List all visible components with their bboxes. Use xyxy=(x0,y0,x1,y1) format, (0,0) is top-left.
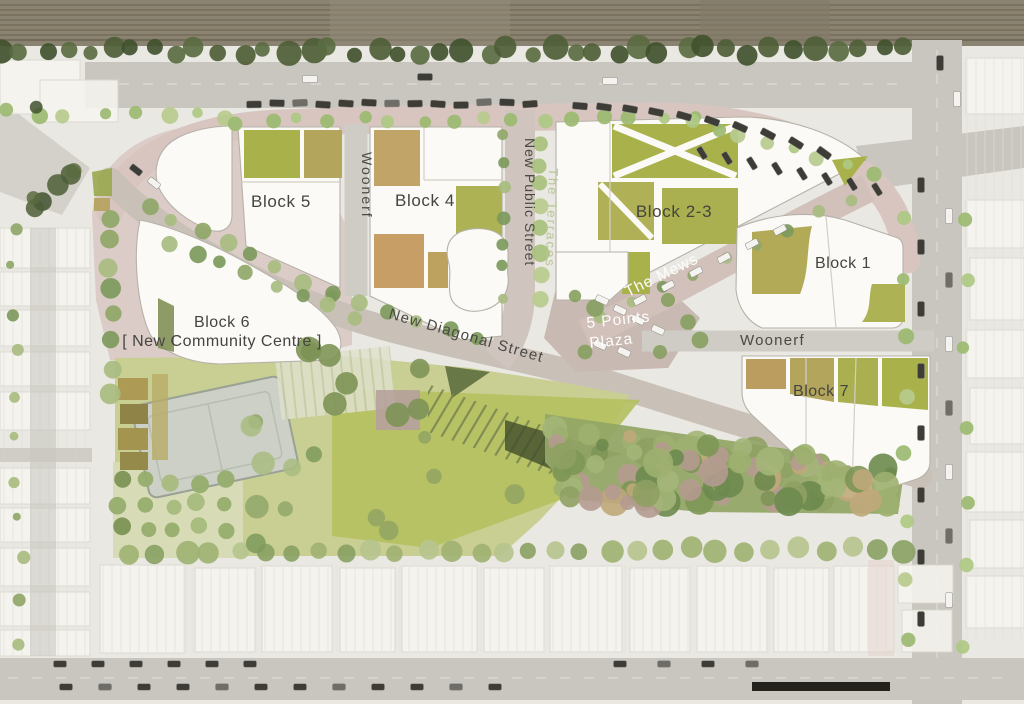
tree xyxy=(100,108,111,119)
car xyxy=(946,273,953,288)
tree xyxy=(176,541,200,565)
car xyxy=(54,661,67,668)
tree xyxy=(550,443,577,470)
tree xyxy=(142,198,159,215)
tree xyxy=(351,294,368,311)
tree xyxy=(323,392,347,416)
tree xyxy=(496,260,507,271)
car xyxy=(954,92,961,107)
car xyxy=(702,661,715,668)
bottom-road xyxy=(0,658,1024,700)
tree xyxy=(218,523,234,539)
car xyxy=(946,529,953,544)
tree xyxy=(161,236,177,252)
car xyxy=(244,661,257,668)
tree xyxy=(896,445,912,461)
tree xyxy=(271,281,283,293)
tree xyxy=(961,496,975,510)
tree xyxy=(596,439,609,452)
car xyxy=(746,661,759,668)
car xyxy=(92,661,105,668)
tree xyxy=(114,471,131,488)
tree xyxy=(568,44,585,61)
tree xyxy=(278,501,293,516)
tree xyxy=(497,212,511,226)
car xyxy=(918,612,925,627)
car xyxy=(168,661,181,668)
tree xyxy=(956,640,970,654)
label-woonerf-east: Woonerf xyxy=(740,332,805,349)
car xyxy=(177,684,190,691)
tree xyxy=(8,477,19,488)
car xyxy=(372,684,385,691)
car xyxy=(946,465,953,480)
car xyxy=(130,661,143,668)
tree xyxy=(431,43,449,61)
tree xyxy=(419,540,439,560)
tree xyxy=(543,34,569,60)
tree xyxy=(187,493,205,511)
tree xyxy=(213,255,226,268)
tree xyxy=(113,517,131,535)
car xyxy=(937,56,944,71)
car xyxy=(918,426,925,441)
tree xyxy=(681,536,703,558)
tree xyxy=(843,159,853,169)
tree xyxy=(84,46,98,60)
tree xyxy=(852,469,873,490)
tree xyxy=(794,444,815,465)
car xyxy=(292,99,307,107)
tree xyxy=(241,415,262,436)
tree xyxy=(141,522,156,537)
tree xyxy=(473,544,492,563)
long-vehicle xyxy=(752,682,890,691)
tree xyxy=(291,113,302,124)
tree xyxy=(320,114,334,128)
tree xyxy=(703,540,726,563)
tree xyxy=(646,42,668,64)
car xyxy=(476,98,491,106)
car xyxy=(60,684,73,691)
tree xyxy=(306,446,322,462)
site-plan-svg: Block 5 Block 4 Block 2-3 Block 1 Block … xyxy=(0,0,1024,704)
tree xyxy=(477,111,490,124)
car xyxy=(918,550,925,565)
tree xyxy=(13,513,21,521)
tree xyxy=(494,36,516,58)
tree xyxy=(246,534,266,554)
car xyxy=(946,401,953,416)
tree xyxy=(717,39,735,57)
tree xyxy=(498,294,508,304)
car xyxy=(361,99,376,107)
car xyxy=(138,684,151,691)
tree xyxy=(877,39,893,55)
tree xyxy=(843,537,863,557)
tree xyxy=(680,314,696,330)
tree xyxy=(100,384,121,405)
car xyxy=(294,684,307,691)
tree xyxy=(866,167,881,182)
tree xyxy=(228,117,243,132)
car xyxy=(407,100,422,107)
tree xyxy=(297,289,310,302)
tree xyxy=(30,101,43,114)
tree xyxy=(255,42,270,57)
tree xyxy=(277,41,302,66)
tree xyxy=(958,213,972,227)
tree xyxy=(532,291,549,308)
tree xyxy=(369,38,391,60)
tree xyxy=(40,43,57,60)
label-block-7: Block 7 xyxy=(793,383,849,400)
tree xyxy=(386,545,403,562)
tree xyxy=(758,37,779,58)
tree xyxy=(317,37,335,55)
tree xyxy=(569,290,581,302)
tree xyxy=(283,459,301,477)
tree xyxy=(245,495,269,519)
tree xyxy=(347,48,362,63)
tree xyxy=(449,38,473,62)
tree xyxy=(653,540,674,561)
tree xyxy=(10,44,27,61)
tree xyxy=(538,114,553,129)
tree xyxy=(209,45,226,62)
tree xyxy=(898,572,913,587)
car xyxy=(572,102,588,110)
tree xyxy=(692,332,709,349)
car xyxy=(384,100,399,107)
tree xyxy=(311,543,327,559)
car xyxy=(918,178,925,193)
tree xyxy=(496,239,508,251)
label-block-1: Block 1 xyxy=(815,255,871,272)
tree xyxy=(220,234,238,252)
car xyxy=(946,593,953,608)
tree xyxy=(623,430,636,443)
tree xyxy=(268,260,281,273)
tree xyxy=(410,359,430,379)
label-new-public-street: New Public Street xyxy=(522,138,538,266)
tree xyxy=(348,311,362,325)
tree xyxy=(236,45,256,65)
car xyxy=(303,76,318,83)
tree xyxy=(611,46,629,64)
tree xyxy=(821,481,836,496)
tree xyxy=(9,392,20,403)
community-gardens xyxy=(118,374,168,470)
car xyxy=(333,684,346,691)
car xyxy=(614,661,627,668)
tree xyxy=(578,486,603,511)
tree xyxy=(583,43,601,61)
tree xyxy=(498,157,509,168)
tree xyxy=(243,247,257,261)
car xyxy=(206,661,219,668)
label-block-4: Block 4 xyxy=(395,191,455,210)
tree xyxy=(266,114,281,129)
context-buildings-left xyxy=(0,228,92,656)
tree xyxy=(338,545,356,563)
tree xyxy=(6,261,14,269)
tree xyxy=(734,542,754,562)
tree xyxy=(385,403,409,427)
tree xyxy=(119,545,139,565)
tree xyxy=(504,113,517,126)
tree xyxy=(418,431,431,444)
tree xyxy=(892,540,916,564)
tree xyxy=(98,258,117,277)
tree xyxy=(13,594,26,607)
tree xyxy=(627,444,643,460)
tree xyxy=(605,484,621,500)
tree xyxy=(961,273,975,287)
car xyxy=(411,684,424,691)
tree xyxy=(787,536,809,558)
car xyxy=(99,684,112,691)
tree xyxy=(959,558,973,572)
tree xyxy=(390,47,405,62)
tree xyxy=(360,539,381,560)
car xyxy=(918,364,925,379)
tree xyxy=(447,115,461,129)
tree xyxy=(737,45,758,66)
tree xyxy=(168,46,186,64)
tree xyxy=(55,109,69,123)
car xyxy=(499,99,514,107)
car xyxy=(453,102,468,109)
label-block-6: Block 6 xyxy=(194,314,250,331)
car xyxy=(489,684,502,691)
tree xyxy=(105,305,121,321)
tree xyxy=(100,230,119,249)
car xyxy=(918,240,925,255)
tree xyxy=(61,42,77,58)
tree xyxy=(901,633,915,647)
tree xyxy=(379,521,399,541)
tree xyxy=(774,487,803,516)
tree xyxy=(564,112,579,127)
tree xyxy=(162,475,179,492)
tree xyxy=(191,517,208,534)
tree xyxy=(897,273,909,285)
car xyxy=(216,684,229,691)
tree xyxy=(846,195,858,207)
label-woonerf-west: Woonerf xyxy=(359,152,375,219)
tree xyxy=(784,40,803,59)
car xyxy=(450,684,463,691)
tree xyxy=(102,210,120,228)
tree xyxy=(643,448,673,478)
car xyxy=(315,101,330,109)
tree xyxy=(653,345,667,359)
tree xyxy=(441,541,462,562)
tree xyxy=(66,163,82,179)
car xyxy=(246,101,261,108)
label-block-2-3: Block 2-3 xyxy=(636,202,712,221)
tree xyxy=(100,278,121,299)
context-buildings-right xyxy=(966,58,1024,638)
context-buildings-bottom xyxy=(100,560,953,656)
tree xyxy=(17,551,30,564)
car xyxy=(658,661,671,668)
tree xyxy=(102,331,119,348)
car xyxy=(338,100,353,108)
tree xyxy=(760,540,780,560)
tree xyxy=(859,489,882,512)
tree xyxy=(526,47,541,62)
tree xyxy=(408,399,429,420)
tree xyxy=(411,46,430,65)
tree xyxy=(505,484,525,504)
car xyxy=(946,209,953,224)
tree xyxy=(601,540,623,562)
car xyxy=(918,302,925,317)
tree xyxy=(499,181,511,193)
tree xyxy=(122,39,138,55)
tree xyxy=(898,328,914,344)
tree xyxy=(817,542,837,562)
masterplan-stage: Block 5 Block 4 Block 2-3 Block 1 Block … xyxy=(0,0,1024,704)
car xyxy=(918,488,925,503)
tree xyxy=(27,191,41,205)
tree xyxy=(627,541,647,561)
car xyxy=(946,337,953,352)
tree xyxy=(697,434,719,456)
tree xyxy=(138,497,154,513)
tree xyxy=(756,447,785,476)
tree xyxy=(420,116,432,128)
tree xyxy=(47,174,69,196)
tree xyxy=(867,539,888,560)
tree xyxy=(728,451,751,474)
tree xyxy=(192,107,203,118)
tree xyxy=(238,265,253,280)
tree xyxy=(104,361,122,379)
tree xyxy=(360,111,372,123)
tree xyxy=(426,469,441,484)
tree xyxy=(381,115,394,128)
tree xyxy=(12,639,24,651)
car xyxy=(269,99,284,106)
tree xyxy=(761,491,777,507)
tree xyxy=(691,35,713,57)
tree xyxy=(897,211,911,225)
tree xyxy=(7,309,19,321)
tree xyxy=(494,543,514,563)
tree xyxy=(191,476,209,494)
tree xyxy=(578,423,600,445)
tree xyxy=(899,389,915,405)
tree xyxy=(803,36,828,61)
tree xyxy=(960,421,974,435)
left-back-lane xyxy=(30,228,56,656)
tree xyxy=(252,452,275,475)
tree xyxy=(894,37,912,55)
tree xyxy=(957,341,969,353)
tree xyxy=(145,545,164,564)
tree xyxy=(167,500,182,515)
tree xyxy=(828,41,849,62)
tree xyxy=(633,480,660,507)
tree xyxy=(900,515,914,529)
tree xyxy=(661,293,675,307)
tree xyxy=(283,545,299,561)
tree xyxy=(497,129,508,140)
car xyxy=(418,74,433,81)
tree xyxy=(165,523,180,538)
label-block-6-subtitle: [ New Community Centre ] xyxy=(122,333,322,350)
tree xyxy=(138,471,154,487)
car xyxy=(603,78,618,85)
tree xyxy=(320,297,336,313)
car xyxy=(255,684,268,691)
tree xyxy=(109,497,127,515)
tree xyxy=(849,40,867,58)
tree xyxy=(571,543,588,560)
tree xyxy=(679,479,701,501)
tree xyxy=(560,486,581,507)
tree xyxy=(533,267,550,284)
tree xyxy=(162,107,179,124)
block-2-3-south-piece xyxy=(556,252,628,300)
tree xyxy=(620,495,635,510)
tree xyxy=(335,372,358,395)
tree xyxy=(12,344,24,356)
tree xyxy=(147,39,163,55)
tree xyxy=(189,246,206,263)
tree xyxy=(547,541,565,559)
car xyxy=(430,100,445,108)
tree xyxy=(217,497,231,511)
tree xyxy=(165,214,177,226)
tree xyxy=(217,470,234,487)
car xyxy=(522,100,537,108)
tree xyxy=(183,37,204,58)
tree xyxy=(813,205,826,218)
tree xyxy=(10,432,19,441)
tree xyxy=(195,223,212,240)
tree xyxy=(11,223,23,235)
tree xyxy=(520,543,536,559)
tree xyxy=(586,455,604,473)
tree xyxy=(197,542,218,563)
label-block-5: Block 5 xyxy=(251,192,311,211)
tree xyxy=(129,106,142,119)
